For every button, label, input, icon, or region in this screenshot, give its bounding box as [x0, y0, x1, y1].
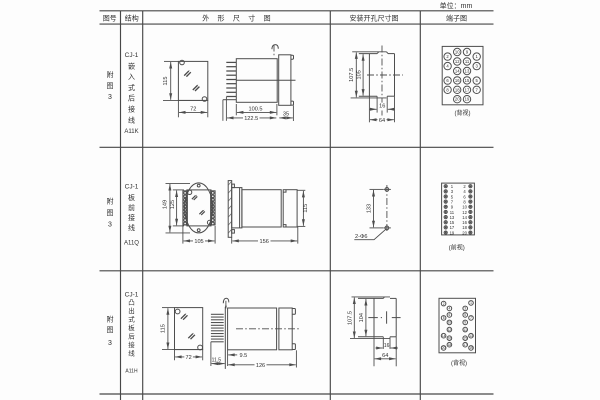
svg-text:单位：mm: 单位：mm	[440, 1, 473, 10]
svg-text:3: 3	[108, 222, 112, 229]
svg-text:7: 7	[470, 316, 472, 320]
svg-text:72: 72	[185, 355, 191, 361]
svg-text:19: 19	[469, 346, 473, 350]
svg-text:133: 133	[367, 204, 373, 213]
svg-text:线: 线	[128, 348, 135, 357]
svg-text:12: 12	[448, 328, 452, 332]
svg-text:64: 64	[379, 118, 385, 124]
svg-text:126: 126	[256, 363, 265, 369]
svg-text:10: 10	[448, 321, 452, 325]
svg-text:11: 11	[464, 328, 468, 332]
svg-text:后: 后	[128, 331, 135, 340]
svg-text:图: 图	[107, 82, 114, 90]
svg-text:(背视): (背视)	[455, 109, 471, 117]
svg-text:13: 13	[469, 334, 473, 338]
svg-text:附: 附	[107, 70, 114, 79]
svg-text:6: 6	[449, 313, 451, 317]
svg-text:115: 115	[161, 324, 167, 333]
svg-text:接: 接	[128, 213, 135, 222]
svg-text:14: 14	[455, 69, 460, 74]
svg-text:A11H: A11H	[125, 369, 138, 375]
svg-text:2: 2	[443, 302, 445, 306]
svg-text:线: 线	[128, 115, 135, 124]
svg-text:72: 72	[190, 106, 196, 112]
svg-text:19: 19	[465, 97, 470, 102]
svg-text:CJ-1: CJ-1	[125, 184, 139, 191]
svg-text:115: 115	[163, 77, 169, 86]
svg-text:图: 图	[107, 209, 114, 217]
svg-text:A11K: A11K	[124, 129, 138, 135]
svg-text:凸: 凸	[128, 298, 135, 306]
svg-text:105: 105	[356, 70, 362, 79]
svg-text:入: 入	[128, 73, 135, 81]
svg-text:CJ-1: CJ-1	[125, 52, 139, 59]
svg-text:8: 8	[443, 316, 445, 320]
svg-text:A11Q: A11Q	[124, 241, 139, 247]
svg-text:156: 156	[260, 239, 269, 245]
svg-text:107.5: 107.5	[349, 68, 355, 82]
svg-text:115: 115	[303, 204, 309, 213]
svg-text:图: 图	[107, 326, 114, 334]
svg-text:17: 17	[463, 343, 467, 347]
svg-text:15: 15	[463, 336, 467, 340]
svg-text:嵌: 嵌	[128, 62, 135, 70]
svg-text:15: 15	[465, 78, 470, 83]
svg-text:附: 附	[107, 197, 114, 206]
svg-text:板: 板	[128, 323, 135, 332]
svg-text:19: 19	[450, 230, 455, 235]
svg-text:安装开孔尺寸图: 安装开孔尺寸图	[350, 13, 399, 22]
svg-text:1: 1	[470, 301, 472, 305]
svg-text:(背视): (背视)	[451, 359, 467, 367]
svg-text:18: 18	[448, 343, 452, 347]
svg-text:18: 18	[455, 87, 460, 92]
svg-text:10: 10	[455, 50, 460, 55]
svg-text:125: 125	[170, 200, 176, 209]
svg-text:3: 3	[108, 94, 112, 101]
svg-text:9.5: 9.5	[240, 353, 248, 359]
svg-text:式: 式	[128, 314, 135, 323]
svg-text:16: 16	[379, 103, 385, 109]
svg-text:(前视): (前视)	[449, 243, 465, 251]
svg-text:149: 149	[163, 200, 169, 209]
svg-text:16: 16	[384, 343, 390, 349]
svg-text:107.5: 107.5	[347, 311, 353, 325]
svg-text:16: 16	[455, 78, 460, 83]
svg-text:11: 11	[465, 59, 470, 64]
svg-text:附: 附	[107, 315, 114, 324]
svg-text:后: 后	[128, 94, 135, 103]
svg-text:2-Φ6: 2-Φ6	[355, 234, 368, 240]
svg-text:105: 105	[194, 239, 203, 245]
svg-text:9: 9	[464, 321, 466, 325]
svg-text:出: 出	[128, 306, 135, 315]
svg-text:结构: 结构	[125, 13, 139, 22]
svg-text:14: 14	[442, 334, 446, 338]
svg-text:外 形 尺 寸 图: 外 形 尺 寸 图	[202, 13, 274, 22]
svg-text:3: 3	[464, 307, 466, 311]
svg-text:板: 板	[128, 193, 135, 202]
svg-text:5: 5	[464, 313, 466, 317]
svg-text:式: 式	[128, 83, 135, 92]
svg-text:17: 17	[465, 87, 470, 92]
svg-text:20: 20	[455, 97, 460, 102]
svg-text:接: 接	[128, 105, 135, 114]
svg-text:3: 3	[108, 340, 112, 347]
svg-text:16: 16	[448, 336, 452, 340]
svg-text:端子图: 端子图	[446, 13, 467, 22]
svg-text:35: 35	[283, 112, 289, 118]
svg-text:线: 线	[128, 223, 135, 232]
svg-text:20: 20	[442, 346, 446, 350]
svg-text:CJ-1: CJ-1	[125, 292, 139, 299]
svg-text:12: 12	[455, 59, 460, 64]
svg-text:4: 4	[449, 307, 451, 311]
svg-text:122.5: 122.5	[244, 116, 258, 122]
svg-text:接: 接	[128, 340, 135, 349]
svg-text:64: 64	[382, 353, 388, 359]
svg-text:13: 13	[465, 69, 470, 74]
svg-text:20: 20	[462, 230, 467, 235]
svg-text:100.5: 100.5	[249, 106, 263, 112]
svg-text:图号: 图号	[103, 14, 117, 22]
svg-text:前: 前	[128, 203, 135, 212]
svg-text:11.5: 11.5	[212, 357, 222, 363]
svg-text:104: 104	[359, 313, 365, 322]
